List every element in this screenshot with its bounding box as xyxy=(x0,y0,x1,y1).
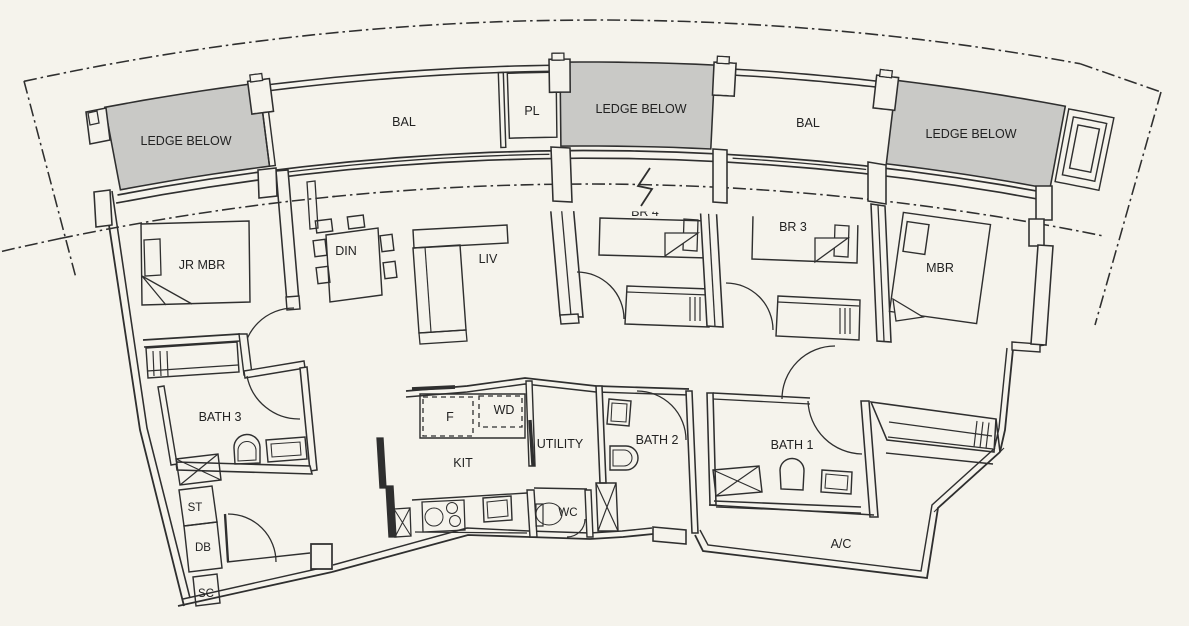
svg-text:BATH 3: BATH 3 xyxy=(199,410,242,424)
svg-text:ST: ST xyxy=(188,502,203,514)
svg-text:UTILITY: UTILITY xyxy=(537,437,584,451)
svg-text:MBR: MBR xyxy=(926,261,954,275)
svg-text:SC: SC xyxy=(198,588,214,600)
svg-text:LEDGE BELOW: LEDGE BELOW xyxy=(926,127,1017,141)
svg-text:BAL: BAL xyxy=(796,116,820,130)
svg-text:JR MBR: JR MBR xyxy=(179,258,226,272)
svg-text:LIV: LIV xyxy=(479,252,498,266)
svg-text:PL: PL xyxy=(524,104,539,118)
svg-text:BATH 2: BATH 2 xyxy=(636,433,679,447)
svg-text:F: F xyxy=(446,410,454,424)
svg-text:A/C: A/C xyxy=(831,537,852,551)
svg-text:WC: WC xyxy=(558,507,577,519)
svg-text:BR 3: BR 3 xyxy=(779,220,807,234)
svg-text:LEDGE BELOW: LEDGE BELOW xyxy=(596,102,687,116)
svg-text:LEDGE BELOW: LEDGE BELOW xyxy=(141,134,232,148)
svg-text:DB: DB xyxy=(195,542,211,554)
svg-text:KIT: KIT xyxy=(453,456,473,470)
svg-text:BATH 1: BATH 1 xyxy=(771,438,814,452)
svg-text:DIN: DIN xyxy=(335,244,357,258)
svg-text:WD: WD xyxy=(494,403,515,417)
svg-text:BAL: BAL xyxy=(392,115,416,129)
